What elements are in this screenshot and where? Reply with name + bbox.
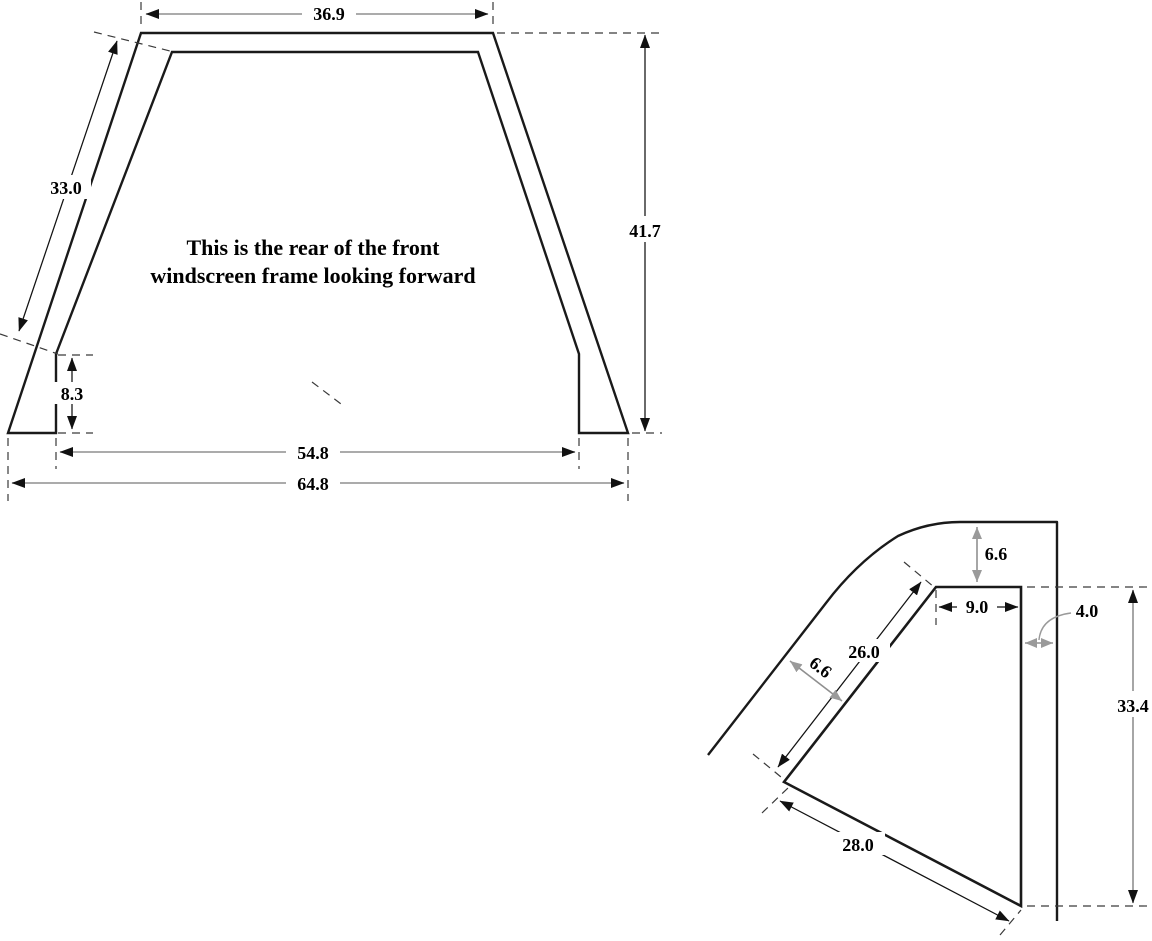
dimension-label-top-frame-depth: 6.6 xyxy=(985,544,1008,564)
extension-line xyxy=(762,786,790,813)
caption-line1: This is the rear of the front xyxy=(187,235,441,260)
dimension-side-height: 33.4 xyxy=(1027,587,1152,906)
dimension-inner-base-width: 54.8 xyxy=(56,438,579,469)
dimension-label-top-width: 36.9 xyxy=(313,4,345,24)
dimension-label-side-gap: 4.0 xyxy=(1076,601,1099,621)
caption-line2: windscreen frame looking forward xyxy=(150,263,475,288)
extension-line xyxy=(753,754,781,777)
figure1-windscreen-frame: 36.9 33.0 41.7 8.3 xyxy=(0,2,671,501)
dimension-side-gap: 4.0 xyxy=(1025,601,1098,643)
dimension-label-inner-base-width: 54.8 xyxy=(297,443,329,463)
dimension-label-lower-edge-length: 28.0 xyxy=(842,835,874,855)
dimension-label-outer-base-width: 64.8 xyxy=(297,474,329,494)
dimension-top-frame-depth: 6.6 xyxy=(977,527,1007,582)
technical-drawing-page: 36.9 33.0 41.7 8.3 xyxy=(0,0,1152,941)
figure2-corner-detail: 6.6 9.0 4.0 26.0 6.6 xyxy=(708,522,1152,935)
windscreen-frame-outline xyxy=(8,33,628,433)
corner-opening-outline xyxy=(784,587,1021,906)
extension-line xyxy=(904,562,934,587)
dimension-top-width: 36.9 xyxy=(141,2,493,30)
dimension-label-foot-height: 8.3 xyxy=(61,384,84,404)
dimension-label-corner-top-width: 9.0 xyxy=(966,597,989,617)
dashed-centre-mark xyxy=(312,382,345,407)
dimension-foot-height: 8.3 xyxy=(54,355,93,433)
extension-line xyxy=(1000,910,1021,935)
dimension-label-pillar-inner-length: 26.0 xyxy=(848,642,880,662)
dimension-label-pillar-length: 33.0 xyxy=(50,178,82,198)
dimension-label-side-height: 33.4 xyxy=(1117,696,1149,716)
windscreen-frame-drawing: 36.9 33.0 41.7 8.3 xyxy=(0,0,1152,941)
dimension-label-overall-height: 41.7 xyxy=(629,221,661,241)
dimension-label-pillar-frame-width: 6.6 xyxy=(806,652,836,682)
leader-curve xyxy=(1039,613,1071,640)
